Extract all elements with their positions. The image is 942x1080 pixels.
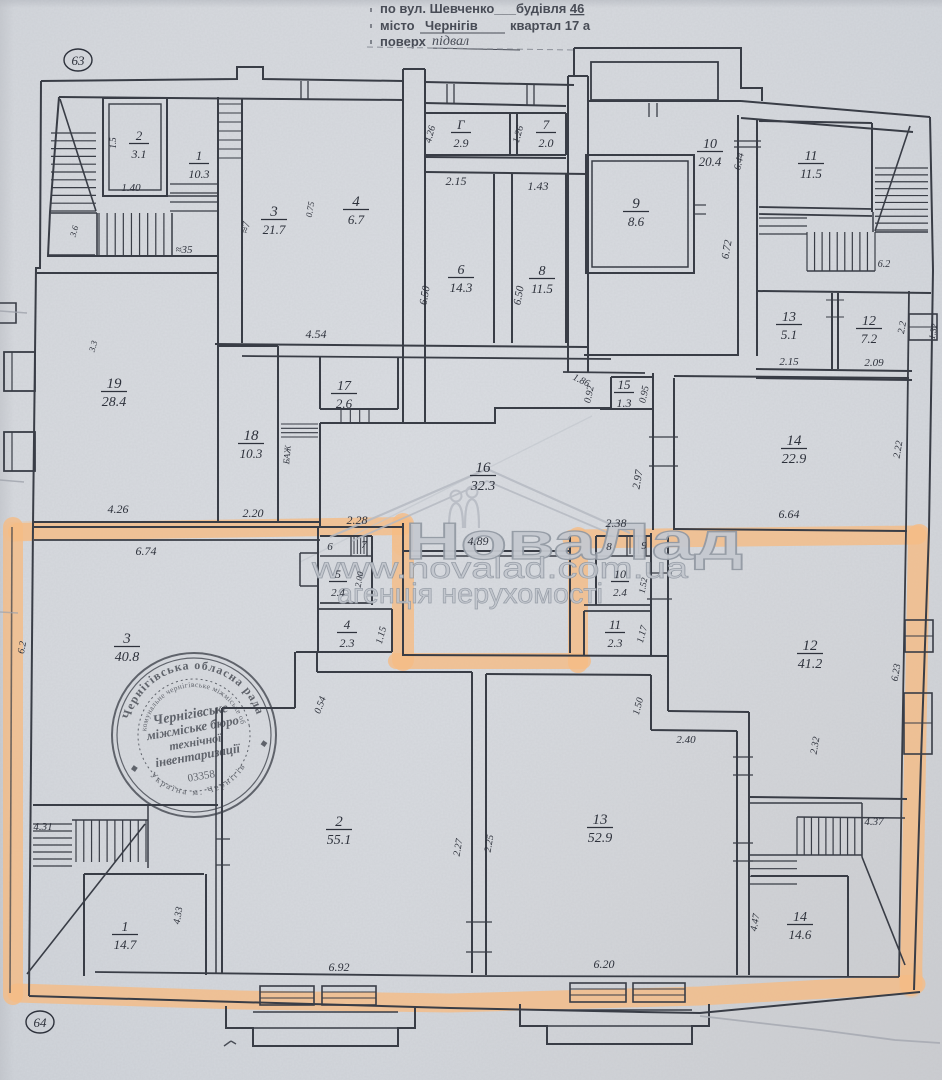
svg-text:4.31: 4.31 [33, 821, 52, 833]
svg-text:1.5: 1.5 [108, 137, 118, 149]
svg-text:7.2: 7.2 [861, 331, 878, 346]
svg-text:2.38: 2.38 [606, 516, 627, 530]
svg-text:1.40: 1.40 [121, 182, 141, 194]
svg-text:20.4: 20.4 [699, 154, 722, 169]
svg-text:2.28: 2.28 [347, 513, 368, 527]
svg-text:8.6: 8.6 [628, 214, 645, 229]
svg-text:≈35: ≈35 [175, 244, 193, 256]
svg-text:17: 17 [337, 379, 352, 394]
svg-text:2.15: 2.15 [779, 356, 799, 368]
svg-text:11.5: 11.5 [800, 166, 822, 181]
svg-text:13: 13 [782, 310, 796, 325]
svg-text:3.1: 3.1 [131, 147, 147, 161]
svg-text:63: 63 [72, 53, 86, 68]
svg-text:2.20: 2.20 [243, 506, 264, 520]
svg-text:32.3: 32.3 [470, 479, 496, 494]
svg-text:агенція нерухомості: агенція нерухомості [337, 578, 603, 609]
svg-text:12: 12 [803, 638, 819, 654]
svg-text:2.09: 2.09 [864, 357, 884, 369]
svg-text:2.0: 2.0 [539, 136, 554, 150]
svg-text:14.6: 14.6 [789, 927, 812, 942]
svg-text:2.9: 2.9 [454, 136, 469, 150]
svg-text:11: 11 [609, 617, 621, 632]
svg-text:9: 9 [632, 196, 640, 212]
svg-text:2.40: 2.40 [676, 734, 696, 746]
svg-text:1.43: 1.43 [528, 179, 549, 193]
svg-text:4: 4 [352, 194, 360, 210]
svg-text:БАЖ: БАЖ [281, 444, 293, 465]
svg-text:4.26: 4.26 [108, 502, 129, 516]
svg-text:52.9: 52.9 [588, 831, 613, 846]
svg-text:2.3: 2.3 [608, 636, 623, 650]
svg-text:4.37: 4.37 [864, 816, 884, 828]
svg-text:28.4: 28.4 [102, 395, 127, 410]
svg-text:10.3: 10.3 [240, 446, 263, 461]
svg-text:3: 3 [122, 631, 131, 647]
svg-text:7: 7 [361, 539, 367, 551]
svg-text:16: 16 [476, 460, 492, 476]
svg-text:по вул. Шевченко___будівля 46: по вул. Шевченко___будівля 46 [380, 1, 584, 16]
svg-text:8: 8 [606, 541, 612, 553]
svg-text:12: 12 [862, 314, 876, 329]
svg-text:13: 13 [593, 812, 608, 828]
svg-text:21.7: 21.7 [263, 222, 286, 237]
svg-text:18: 18 [244, 428, 260, 444]
svg-text:11.5: 11.5 [531, 281, 553, 296]
svg-text:41.2: 41.2 [798, 657, 823, 672]
svg-text:2.15: 2.15 [446, 174, 467, 188]
svg-text:4.54: 4.54 [306, 327, 327, 341]
svg-text:4: 4 [344, 617, 351, 632]
svg-text:1: 1 [196, 148, 203, 163]
svg-text:6.20: 6.20 [594, 957, 615, 971]
svg-text:2: 2 [335, 814, 343, 830]
svg-text:1.3: 1.3 [617, 396, 632, 410]
svg-text:8: 8 [539, 264, 546, 279]
svg-text:10: 10 [614, 567, 626, 581]
svg-text:6.2: 6.2 [16, 640, 29, 654]
svg-text:14: 14 [793, 910, 807, 925]
svg-text:11: 11 [805, 149, 818, 164]
svg-text:15: 15 [618, 377, 632, 392]
svg-text:6.7: 6.7 [348, 212, 365, 227]
svg-text:64: 64 [34, 1015, 48, 1030]
svg-text:9: 9 [641, 540, 647, 552]
svg-text:1: 1 [122, 920, 129, 935]
svg-text:14.3: 14.3 [450, 280, 473, 295]
svg-text:Г: Г [456, 117, 465, 132]
svg-text:14.7: 14.7 [114, 937, 137, 952]
svg-text:6: 6 [327, 541, 333, 553]
svg-text:6.74: 6.74 [136, 544, 157, 558]
svg-text:10: 10 [703, 137, 717, 152]
svg-text:10.3: 10.3 [189, 167, 210, 181]
svg-text:7: 7 [543, 117, 550, 132]
svg-text:2.3: 2.3 [340, 636, 355, 650]
svg-text:2.2: 2.2 [896, 320, 909, 334]
svg-text:2.4: 2.4 [613, 587, 627, 599]
svg-text:5: 5 [335, 567, 341, 581]
svg-text:6.64: 6.64 [779, 507, 800, 521]
svg-text:6.92: 6.92 [329, 960, 350, 974]
svg-text:2: 2 [136, 128, 143, 143]
svg-text:22.9: 22.9 [782, 452, 807, 467]
svg-text:55.1: 55.1 [327, 833, 352, 848]
svg-text:6: 6 [458, 263, 465, 278]
svg-text:2.6: 2.6 [336, 396, 353, 411]
svg-text:підвал: підвал [432, 34, 469, 49]
svg-text:5.1: 5.1 [781, 327, 797, 342]
svg-text:14: 14 [787, 433, 803, 449]
svg-text:6.2: 6.2 [878, 259, 891, 270]
svg-text:40.8: 40.8 [115, 650, 140, 665]
svg-text:поверх: поверх [380, 34, 427, 49]
svg-text:19: 19 [107, 376, 123, 392]
svg-text:4.89: 4.89 [468, 534, 489, 548]
svg-text:3: 3 [269, 204, 278, 220]
svg-text:2.4: 2.4 [331, 587, 345, 599]
